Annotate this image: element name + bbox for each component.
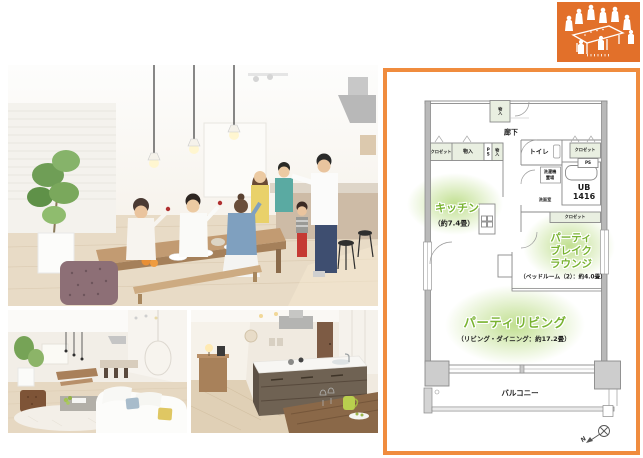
window: [42, 344, 68, 364]
laundry-label-2: 置場: [546, 176, 554, 180]
photo-island-kitchen: [191, 310, 378, 433]
coffee-table: [60, 396, 102, 411]
photo-dining-party: [8, 65, 378, 306]
kitchen-illustration: [191, 310, 378, 433]
kitchen-label: キッチン: [435, 203, 479, 214]
tufted-ottoman: [60, 261, 118, 305]
living-windows-and-pillars: [425, 361, 621, 389]
living-size-label: （リビング・ダイニング：約17.2畳）: [457, 337, 570, 343]
north-compass: [586, 426, 610, 444]
storage-top-label: 物入: [498, 107, 502, 115]
closet-right-label: クロゼット: [575, 148, 596, 152]
laundry-label-1: 洗濯機: [544, 170, 556, 174]
floorplan-panel: 廊下 物入 クロゼット 物入 PS 物入 トイレ クロゼット PS 洗濯機 置場…: [383, 68, 640, 455]
bath-label-ub: UB: [578, 184, 591, 192]
dining-party-illustration: [8, 65, 378, 306]
ceiling-light: [259, 314, 263, 318]
lounge-size-label: （ベッドルーム（2）：約4.0畳）: [520, 274, 606, 280]
kitchen-size-label: （約7.4畳）: [434, 221, 474, 228]
living-room-illustration: [8, 310, 187, 433]
toilet-label: トイレ: [529, 149, 548, 155]
washroom-label: 洗面室: [539, 198, 551, 202]
party-pictogram: [557, 2, 640, 62]
hallway-label: 廊下: [504, 130, 518, 137]
living-label: パーティリビング: [463, 317, 566, 330]
lounge-label-2: ブレイク: [550, 246, 592, 257]
bath-label-size: 1416: [573, 193, 595, 201]
logo-background: [557, 2, 640, 62]
balcony-label: バルコニー: [501, 389, 538, 397]
closet-left-label: クロゼット: [431, 150, 452, 154]
flyer-page: 廊下 物入 クロゼット 物入 PS 物入 トイレ クロゼット PS 洗濯機 置場…: [0, 0, 643, 458]
photo-living-room: [8, 310, 187, 433]
storage-1-label: 物入: [463, 150, 473, 155]
storage-2-label: 物入: [495, 148, 499, 156]
lounge-label-1: パーティ: [550, 233, 591, 244]
ceiling-light: [274, 312, 278, 316]
party-logo: [557, 2, 640, 62]
ps-2-label: PS: [585, 161, 591, 165]
lounge-label-3: ラウンジ: [550, 259, 592, 270]
closet-bedroom-label: クロゼット: [565, 215, 586, 219]
ps-1-label: PS: [486, 147, 490, 156]
